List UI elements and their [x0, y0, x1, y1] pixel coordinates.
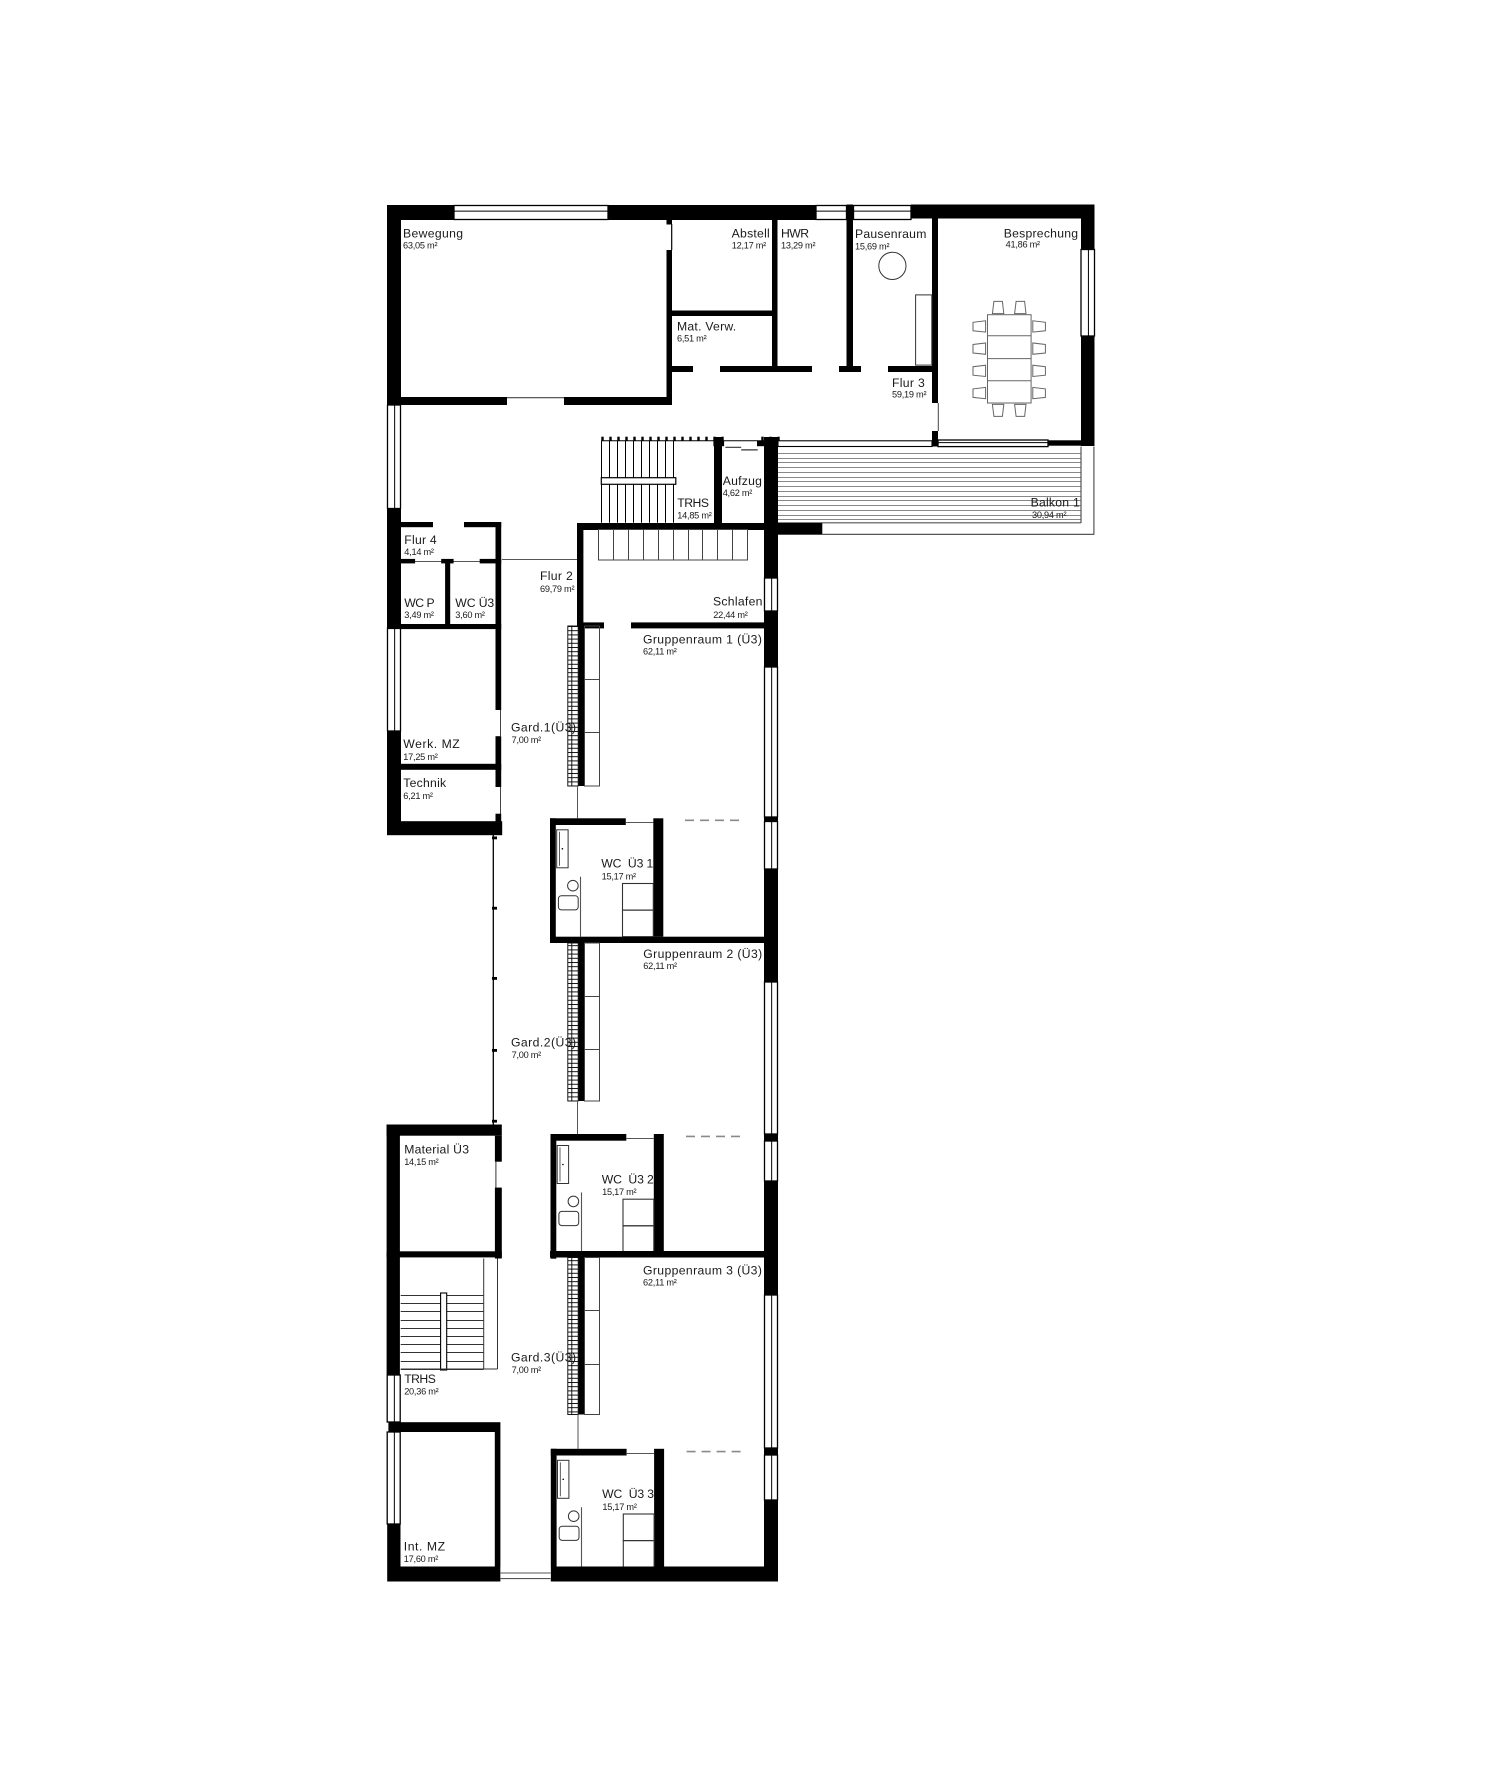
svg-text:Gard.3(Ü3): Gard.3(Ü3): [511, 1351, 576, 1365]
svg-text:Gard.2(Ü3): Gard.2(Ü3): [511, 1036, 576, 1050]
svg-text:62,11 m²: 62,11 m²: [643, 961, 677, 971]
svg-text:Gard.1(Ü3): Gard.1(Ü3): [511, 721, 576, 735]
svg-text:WC Ü3: WC Ü3: [455, 596, 494, 610]
svg-text:12,17 m²: 12,17 m²: [732, 240, 766, 250]
svg-text:7,00 m²: 7,00 m²: [512, 735, 542, 745]
svg-text:WC Ü3 2: WC Ü3 2: [602, 1172, 654, 1186]
svg-text:13,29 m²: 13,29 m²: [781, 240, 815, 250]
svg-text:14,85 m²: 14,85 m²: [677, 510, 711, 520]
svg-text:Int. MZ: Int. MZ: [404, 1540, 446, 1554]
svg-text:15,17 m²: 15,17 m²: [602, 1502, 636, 1512]
svg-text:30,94 m²: 30,94 m²: [1032, 510, 1066, 520]
svg-text:20,36 m²: 20,36 m²: [404, 1387, 438, 1397]
svg-text:Gruppenraum 3 (Ü3): Gruppenraum 3 (Ü3): [643, 1263, 762, 1277]
svg-text:22,44 m²: 22,44 m²: [713, 610, 747, 620]
svg-text:59,19 m²: 59,19 m²: [892, 390, 926, 400]
svg-text:17,25 m²: 17,25 m²: [403, 752, 437, 762]
svg-text:17,60 m²: 17,60 m²: [404, 1554, 438, 1564]
svg-text:4,14 m²: 4,14 m²: [404, 547, 434, 557]
svg-text:Schlafen: Schlafen: [713, 594, 763, 608]
svg-text:HWR: HWR: [781, 226, 809, 240]
svg-text:Bewegung: Bewegung: [403, 226, 463, 240]
svg-text:Flur 3: Flur 3: [892, 376, 925, 390]
svg-text:62,11 m²: 62,11 m²: [643, 646, 677, 656]
svg-text:Material Ü3: Material Ü3: [404, 1143, 469, 1157]
svg-text:WC P: WC P: [404, 596, 434, 610]
svg-text:WC Ü3 1: WC Ü3 1: [601, 857, 653, 871]
svg-text:4,62 m²: 4,62 m²: [723, 488, 753, 498]
svg-text:Pausenraum: Pausenraum: [855, 227, 927, 241]
svg-text:Aufzug: Aufzug: [723, 474, 762, 488]
svg-text:69,79 m²: 69,79 m²: [540, 584, 574, 594]
svg-text:TRHS: TRHS: [677, 496, 709, 510]
svg-text:Mat. Verw.: Mat. Verw.: [677, 319, 736, 333]
svg-text:6,21 m²: 6,21 m²: [403, 791, 433, 801]
svg-text:Abstell: Abstell: [732, 226, 770, 240]
svg-text:TRHS: TRHS: [404, 1372, 436, 1386]
svg-text:15,69 m²: 15,69 m²: [855, 241, 889, 251]
svg-text:7,00 m²: 7,00 m²: [512, 1365, 542, 1375]
svg-text:Werk. MZ: Werk. MZ: [403, 737, 460, 751]
svg-text:Flur 4: Flur 4: [404, 533, 437, 547]
svg-text:WC Ü3 3: WC Ü3 3: [602, 1487, 654, 1501]
svg-text:Technik: Technik: [403, 776, 447, 790]
svg-text:Flur 2: Flur 2: [540, 569, 573, 583]
svg-text:3,49 m²: 3,49 m²: [404, 610, 434, 620]
svg-text:Gruppenraum 1 (Ü3): Gruppenraum 1 (Ü3): [643, 632, 762, 646]
svg-text:6,51 m²: 6,51 m²: [677, 334, 707, 344]
svg-text:63,05 m²: 63,05 m²: [403, 240, 437, 250]
svg-text:62,11 m²: 62,11 m²: [643, 1277, 677, 1287]
svg-text:Besprechung: Besprechung: [1004, 226, 1079, 240]
svg-text:Balkon 1: Balkon 1: [1031, 496, 1080, 510]
svg-text:7,00 m²: 7,00 m²: [512, 1050, 542, 1060]
svg-text:3,60 m²: 3,60 m²: [455, 610, 485, 620]
svg-text:15,17 m²: 15,17 m²: [602, 1187, 636, 1197]
svg-text:Gruppenraum 2 (Ü3): Gruppenraum 2 (Ü3): [643, 947, 762, 961]
svg-text:14,15 m²: 14,15 m²: [404, 1157, 438, 1167]
svg-text:15,17 m²: 15,17 m²: [602, 872, 636, 882]
svg-text:41,86 m²: 41,86 m²: [1006, 240, 1040, 250]
